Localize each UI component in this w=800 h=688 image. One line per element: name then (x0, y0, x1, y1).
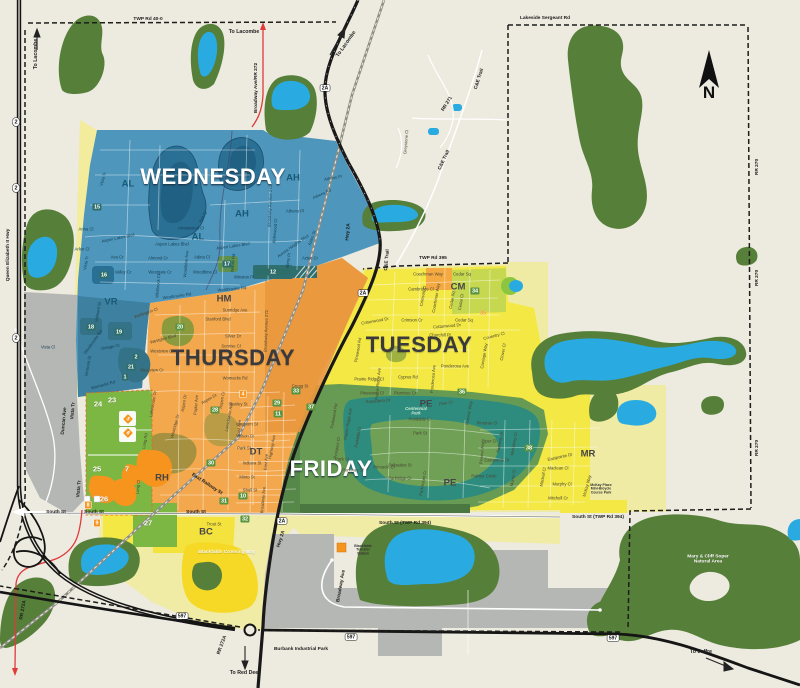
street-label: Gregg St (292, 384, 309, 388)
street-label: Vista Cl (41, 345, 55, 349)
street-label: Westbrooke Rd (217, 286, 246, 293)
zone-code-label: VR (104, 297, 117, 307)
park-label: Centennial Park (405, 407, 427, 416)
zone-day-label: FRIDAY (290, 457, 373, 480)
street-label: Willow Rd (230, 254, 236, 273)
street-label: Cottonwood Dr (361, 316, 389, 325)
street-label: Womacks Rd (223, 376, 248, 380)
street-label: Cedar Sq (448, 291, 455, 309)
zone-marker: 33 (291, 388, 300, 395)
street-label: Park St (413, 431, 427, 435)
street-label: Aspen Dr (180, 394, 187, 412)
street-label: Pinnacle Cl (373, 465, 394, 469)
road-label: C&E Trail (473, 68, 484, 90)
road-label: C&E Trail (437, 149, 451, 170)
street-label: Womacks Rd (90, 380, 115, 391)
road-label: Hwy 2A (345, 223, 352, 241)
zone-marker: 36 (457, 389, 466, 396)
zone-code-label: AH (286, 173, 300, 183)
zone-code-label: AL (192, 232, 205, 242)
street-label: Aspen Lakes Blvd (216, 241, 250, 250)
street-label: Vintage Cl (100, 343, 120, 351)
street-label: Prairie Ridge Cl (354, 377, 383, 381)
street-label: Ponderosa Ave (430, 365, 437, 394)
street-label: Vista Tr (99, 172, 107, 187)
highway-shield: 2A (358, 290, 368, 297)
zone-code-label: PE (444, 478, 457, 488)
zone-day-label: TUESDAY (366, 333, 473, 356)
street-label: Parkhills Cr (354, 426, 362, 448)
zone-code-label: CM (451, 282, 466, 292)
street-label: Lakemount Dr (149, 391, 158, 418)
zone-marker: 28 (210, 407, 219, 414)
zone-marker: 25 (93, 465, 101, 474)
street-label: Long Cl (135, 480, 141, 495)
street-label: Highway Ave (268, 435, 277, 460)
zone-marker: 21 (126, 364, 135, 371)
zone-day-label: WEDNESDAY (140, 165, 285, 188)
street-label: Plumtree Cr (394, 391, 416, 395)
road-label: South St (TWP Rd 394) (379, 520, 431, 525)
street-label: Westgate Cr (148, 270, 171, 274)
zone-code-label: MR (581, 449, 596, 459)
highway-shield: 597 (176, 613, 188, 620)
street-label: Ava Cr (111, 255, 124, 259)
zone-marker: 17 (222, 261, 231, 268)
street-label: East Ave (236, 420, 242, 437)
street-label: Piper Cl (482, 439, 497, 443)
street-label: Adina Cl (194, 255, 210, 259)
street-label: Cottonwood Dr (433, 323, 461, 330)
street-label: Alderwood Cl (272, 218, 279, 243)
zone-code-label: BC (199, 527, 213, 537)
zone-marker: 30 (206, 460, 215, 467)
direction-label: To Lacombe (335, 30, 357, 58)
direction-label: To Joffre (690, 649, 712, 655)
street-label: Stanley St (228, 402, 247, 406)
street-label: East Ave (263, 454, 269, 471)
street-label: Athens Pl (286, 209, 304, 213)
street-label: Poplar Ridge Ave (343, 408, 353, 441)
street-label: Aspen Cr (218, 391, 225, 409)
street-label: Almond Cr (148, 256, 168, 260)
street-label: Aspen Dr (200, 393, 217, 406)
street-label: Greystone Cl (403, 130, 410, 155)
zone-marker: 9 (93, 519, 100, 527)
road-label: RR 270 (754, 270, 759, 286)
street-label: Ponderosa Ave (441, 364, 469, 368)
zone-marker: 19 (114, 329, 123, 336)
road-label: South St (46, 509, 66, 514)
street-label: Woodbine Ave (183, 250, 190, 277)
highway-shield: 2 (12, 333, 20, 343)
street-label: Long Rd (141, 433, 148, 449)
road-label: East Railway St (191, 472, 223, 496)
road-label: Vista Tr (70, 402, 77, 420)
road-label: C&E Trail (384, 249, 391, 271)
street-label: Park St (335, 457, 349, 461)
street-label: Sunrise Cl (221, 344, 240, 348)
street-label: Vermont St (84, 355, 92, 376)
zone-marker: 32 (240, 516, 249, 523)
direction-label: To Lacombe (33, 39, 39, 70)
zone-marker: 15 (92, 204, 101, 211)
zone-marker: 20 (175, 324, 184, 331)
road-label: South St (84, 509, 104, 514)
street-label: Aspen Lakes Blvd (155, 242, 189, 246)
street-label: Eastpointe Dr (547, 452, 573, 462)
zone-marker: 6 (123, 428, 133, 438)
street-label: Arrowwood Cl (178, 226, 204, 230)
place-label: Blackfalds Crossing Way (198, 549, 255, 554)
highway-shield: 2A (320, 85, 330, 92)
street-label: Westglen Blvd (150, 333, 177, 344)
street-label: Palmer Circle (471, 474, 496, 478)
street-label: Shull St (243, 488, 257, 492)
zone-marker: 4 (239, 390, 246, 398)
zone-marker: 31 (219, 498, 228, 505)
zone-code-label: RH (155, 473, 169, 483)
street-label: Wilson St (236, 434, 254, 438)
street-label: Carriage Way (480, 343, 489, 369)
street-label: Pioneer Ave (479, 442, 485, 465)
street-label: Westbrooke Rd (162, 292, 191, 300)
street-label: Aurora Heights Blvd (276, 234, 309, 259)
street-label: Cedar Sq (453, 272, 471, 276)
zone-marker: 7 (125, 465, 129, 474)
street-label: Murphy Cl (552, 482, 571, 486)
street-label: Aztec Cr (302, 256, 318, 260)
street-label: Trout St (207, 522, 222, 526)
zone-marker: 38 (524, 445, 533, 452)
road-label: Burbank Industrial Park (274, 646, 328, 651)
street-label: Aztec St (307, 230, 316, 246)
map-label-overlay: WEDNESDAYTHURSDAYTUESDAYFRIDAYALALAHAHVR… (0, 0, 800, 688)
street-label: Parkway Cl (342, 468, 363, 472)
road-label: RR 272A (216, 635, 227, 655)
road-label: RR 272A (19, 600, 27, 620)
street-label: Westview Cr (140, 368, 163, 372)
street-label: Parkwood Rd (330, 403, 339, 429)
street-label: Valmont St (94, 302, 102, 323)
road-label: RR 270 (754, 440, 759, 456)
street-label: Crimson Cl (419, 285, 427, 306)
street-label: McKay Way (582, 475, 592, 498)
street-label: Lansdowne Ave (224, 402, 233, 432)
street-label: Cedar Cl (457, 293, 464, 310)
street-label: Mitchell Cl (539, 467, 547, 487)
zone-marker: 11 (274, 411, 283, 418)
street-label: Maclean Cl (548, 466, 569, 470)
street-label: Pinewood Rd (354, 337, 363, 362)
road-label: Lakeside Sergeant Rd (520, 15, 570, 20)
zone-marker: 10 (238, 493, 247, 500)
street-label: Pioneer Way (465, 401, 473, 425)
street-label: Westview Cr (150, 349, 173, 353)
road-label: South St (186, 509, 206, 514)
street-label: Palisades St (388, 463, 411, 467)
zone-marker: 34 (470, 288, 479, 295)
street-label: Morris Cl (509, 469, 516, 486)
zone-marker: 2 (133, 354, 139, 361)
place-note-label: McKay Place Mini-Bicycle Course Park (590, 483, 611, 494)
street-label: Coachman Way (413, 272, 443, 276)
street-label: Athens Pl (324, 174, 342, 181)
zone-marker: 1 (122, 374, 128, 381)
street-label: Minto St (239, 475, 254, 479)
road-label: Duncan Ave (60, 407, 67, 435)
street-label: Pondside Cr (408, 417, 431, 421)
street-label: Stanford Blvd (205, 317, 230, 321)
street-label: Panorama Dr (365, 398, 390, 405)
zone-marker: 26 (100, 495, 108, 504)
street-label: Crimson Cr (401, 318, 422, 322)
street-label: Clover Cl (499, 343, 506, 361)
highway-shield: 597 (607, 635, 619, 642)
street-label: Pine Cr (439, 400, 454, 407)
road-label: RR 271 (441, 96, 454, 112)
street-label: Churchill Pl (429, 333, 450, 337)
street-label: Silver Dr (225, 334, 241, 338)
zone-marker: 8 (84, 501, 91, 509)
road-label: TWP Rd 40-0 (133, 16, 162, 21)
north-label: N (703, 84, 715, 102)
zone-day-label: THURSDAY (171, 346, 295, 369)
street-label: Whitbrock Cl (155, 274, 161, 298)
street-label: Eastpointe Dr (484, 458, 509, 462)
street-label: Pinetree Cl (477, 421, 498, 425)
street-label: Arlen Cl (75, 247, 90, 251)
road-label: Vista Tr (76, 480, 83, 498)
zone-marker: 27 (144, 519, 152, 528)
highway-shield: 597 (345, 634, 357, 641)
street-label: Parkway Dr (496, 431, 504, 453)
street-label: Ash Cl (198, 211, 208, 224)
blackfalds-zone-map: WEDNESDAYTHURSDAYTUESDAYFRIDAYALALAHAHVR… (0, 0, 800, 688)
street-label: Woodbine Cl (193, 270, 217, 274)
street-label: Pinewood Cl (360, 391, 384, 395)
zone-code-label: HM (217, 294, 232, 304)
street-label: Broadway Avenue 272 (267, 185, 273, 227)
zone-code-label: AL (122, 179, 135, 189)
street-label: Aspen Lakes Blvd (101, 232, 135, 243)
street-label: Cambridge Cl (408, 287, 434, 291)
direction-label: To Lacombe (229, 29, 260, 35)
street-label: Valley Cr (115, 270, 132, 274)
zone-code-label: AH (235, 209, 249, 219)
street-label: Park St (237, 446, 251, 450)
zone-marker: 37 (306, 404, 315, 411)
street-label: Anna Cl (79, 227, 94, 231)
zone-marker: 23 (108, 396, 116, 405)
highway-shield: 2 (12, 183, 20, 193)
street-label: Wellington Cl (134, 307, 159, 320)
place-label: Mary & Cliff Soper Natural Area (687, 554, 729, 564)
street-label: Indiana St (243, 461, 262, 465)
street-label: Prairie Ridge Ave (374, 368, 381, 401)
street-label: Cedar Sq (455, 318, 473, 322)
street-label: Vista Tr (83, 256, 90, 271)
highway-shield: 2A (277, 518, 287, 525)
road-label: Hwy 2A (276, 530, 286, 548)
road-label: Queen Elizabeth II Hwy (5, 229, 10, 282)
zone-marker: 5 (123, 414, 133, 424)
street-label: Mitchell Cr (548, 496, 568, 500)
road-label: TWP Rd 395 (419, 255, 447, 260)
street-label: Westridge Dr (170, 414, 181, 439)
zone-marker: 16 (99, 272, 108, 279)
zone-marker: 12 (257, 269, 290, 276)
street-label: Broadway Avenue 272 (263, 310, 269, 352)
zone-marker: 35 (480, 310, 486, 316)
street-label: Poplar Ave (193, 395, 199, 415)
street-label: Prospect Cl (333, 437, 341, 459)
zone-code-label: PE (420, 399, 433, 409)
street-label: Parkridge Cr (388, 476, 412, 480)
direction-label: To Red Deer (230, 670, 261, 676)
street-label: Parkmount Cr (419, 470, 428, 496)
street-label: Coachman Way (431, 283, 440, 313)
zone-marker: 29 (272, 400, 281, 407)
street-label: Westbrooke Rd (83, 329, 103, 355)
street-label: McKelvey Cl (510, 432, 518, 456)
road-label: South St (TWP Rd 394) (572, 514, 624, 519)
highway-shield: 2 (12, 117, 20, 127)
place-note-label: Blackfalds Transfer Station (354, 544, 372, 555)
street-label: Waghorn St (236, 422, 258, 426)
street-label: Coventry Cl (483, 331, 505, 341)
zone-marker: 18 (86, 324, 95, 331)
road-label: Broadway Ave/RR 272 (253, 63, 258, 113)
street-label: Broadway Ave (260, 487, 267, 514)
street-label: Cyprus Rd (398, 375, 418, 379)
road-label: RR 270 (754, 159, 759, 175)
street-label: Athens Rd (312, 188, 332, 200)
road-label: Broadway Ave (336, 569, 347, 602)
zone-code-label: DT (250, 447, 263, 457)
street-label: Sunridge Ave (223, 308, 248, 312)
street-label: Adams Pl (284, 253, 291, 271)
street-label: Winston Pl (234, 275, 254, 279)
zone-marker: 24 (94, 400, 102, 409)
